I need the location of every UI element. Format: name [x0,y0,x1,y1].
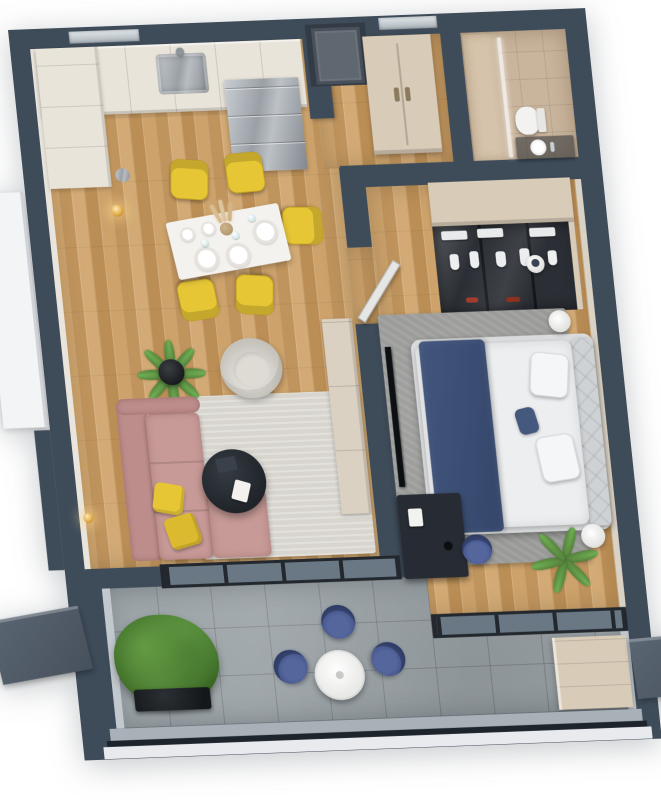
kitchen-sink [155,53,209,95]
plate [251,218,280,246]
hanging-shirt [469,251,480,268]
dining-chair [281,207,324,245]
wardrobe-glass-doors [432,221,583,314]
balcony-storage-cabinet [552,635,634,710]
front-door [311,27,365,85]
pampas-stem [228,202,233,221]
hanging-shirt [495,251,507,267]
dining-chair [223,151,267,194]
shoes-red [466,297,479,302]
hanging-shirt [547,250,558,265]
notebook [408,508,424,527]
entry-closet [362,34,442,155]
vanity-faucet-icon [550,142,555,152]
shoes-red [506,297,521,303]
plate-small [200,221,217,237]
floor-plan-render [0,0,661,800]
vanity-counter [515,135,575,159]
vanity-basin [530,139,548,156]
entry-closet-handle [394,87,400,101]
sofa-cushion-yellow [152,481,185,516]
folded-linen [529,227,556,237]
dining-chair [236,273,274,315]
bed-pillow [529,351,569,399]
desk-lamp-icon [443,541,453,550]
shrub-planter [134,687,212,712]
folded-linen [441,230,468,240]
wardrobe [428,177,584,314]
armchair-seat [227,347,277,394]
vase-dark [531,259,540,267]
top-wall-vent-kitchen [68,29,139,44]
apartment-3d-scene [8,8,661,760]
table-decor-dot [335,671,344,679]
plate-small [179,226,196,242]
drinking-glass [247,213,257,222]
sofa-armrest [115,396,201,415]
entry-closet-handle [405,87,411,101]
folded-linen [477,228,504,238]
plate [192,245,221,273]
neighbor-wall-block [0,192,48,429]
left-wall-thickening [34,430,65,571]
top-wall-vent-hall [378,16,437,30]
dining-chair [175,277,221,322]
wardrobe-top-frame [428,177,575,226]
dining-chair [170,158,208,200]
magazine [231,479,251,503]
hanging-shirt [449,254,460,270]
laptop [215,456,238,473]
potted-palm-bedroom [537,530,592,582]
plate [224,241,253,269]
exterior-panel-left [0,606,93,685]
potted-palm-living [141,342,201,398]
writing-desk [396,493,469,579]
